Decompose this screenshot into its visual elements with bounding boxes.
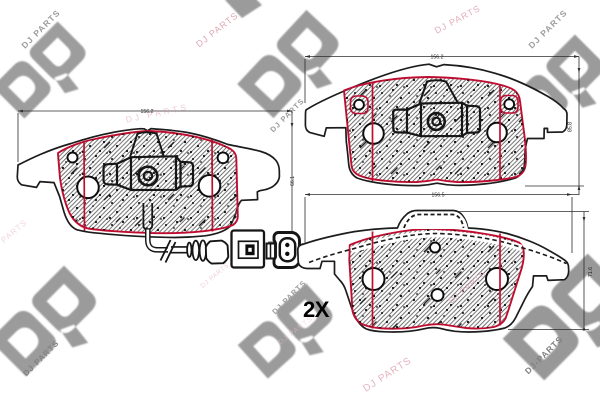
svg-text:71.6: 71.6 [588,267,594,277]
svg-text:156.2: 156.2 [431,54,444,60]
svg-text:85.8: 85.8 [568,122,574,132]
svg-text:156.5: 156.5 [432,192,445,198]
svg-text:2X: 2X [303,297,330,322]
svg-text:66.1: 66.1 [290,176,296,186]
